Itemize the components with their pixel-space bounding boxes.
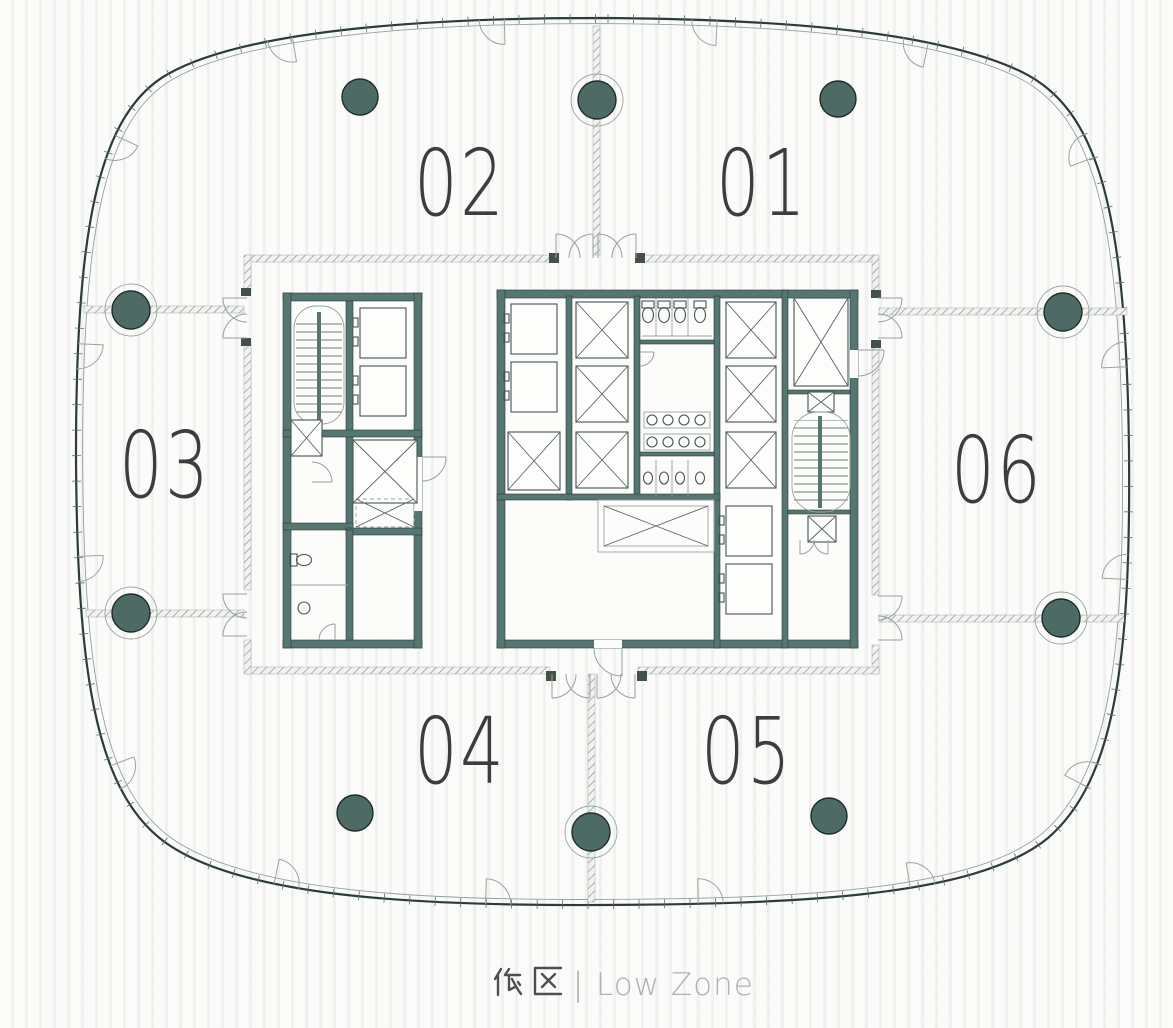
west-stair <box>294 306 344 424</box>
gridline-column <box>105 587 157 639</box>
west-core-block <box>283 293 446 648</box>
field-column <box>342 79 378 115</box>
gridline-column <box>1035 592 1087 644</box>
unit-label-02: 02 <box>414 130 506 237</box>
unit-label-05: 05 <box>701 698 793 805</box>
unit-label-06: 06 <box>951 417 1043 524</box>
caption-zh-glyph-di <box>495 969 521 995</box>
unit-label-04: 04 <box>414 698 506 805</box>
caption-zh-glyph-qu <box>535 968 561 994</box>
field-column <box>337 795 373 831</box>
field-column <box>820 81 856 117</box>
central-core-block <box>497 290 884 676</box>
caption-divider: | <box>573 965 584 1003</box>
unit-label-01: 01 <box>716 130 808 237</box>
floor-plan-svg: 02 01 03 06 04 05 | Low Zone <box>0 0 1173 1024</box>
gridline-column <box>1037 286 1089 338</box>
elevator-car <box>353 308 406 358</box>
gridline-column <box>105 284 157 336</box>
unit-label-03: 03 <box>119 412 211 519</box>
caption: | Low Zone <box>495 965 754 1003</box>
page: { "floor_plan": { "caption": { "zh": "低 … <box>0 0 1173 1024</box>
caption-en: Low Zone <box>596 967 754 1003</box>
elevator-car <box>719 564 772 614</box>
elevator-car <box>504 362 557 412</box>
field-column <box>811 798 847 834</box>
gridline-column <box>571 74 623 126</box>
elevator-car <box>353 366 406 416</box>
elevator-car <box>719 506 772 556</box>
elevator-car <box>504 304 557 354</box>
gridline-column <box>565 806 617 858</box>
